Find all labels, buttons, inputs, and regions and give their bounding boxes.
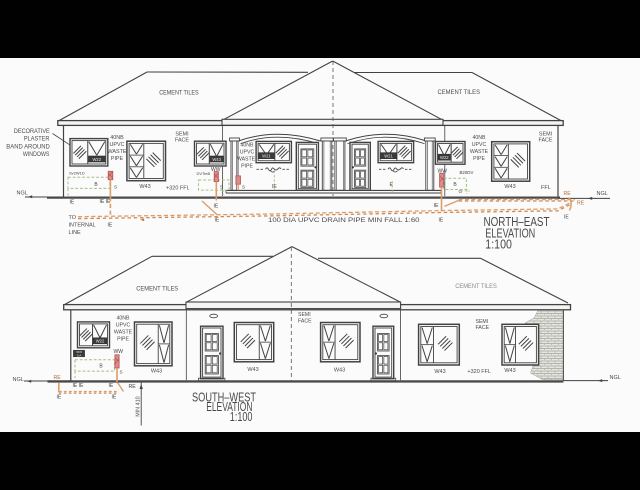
svg-text:UPVC: UPVC: [110, 142, 125, 148]
svg-text:RE: RE: [577, 200, 585, 206]
svg-text:IE: IE: [214, 204, 219, 210]
svg-text:WINDOWS: WINDOWS: [23, 151, 50, 158]
svg-text:WASTE: WASTE: [108, 149, 127, 155]
svg-text:NGL: NGL: [597, 191, 608, 197]
svg-text:IE: IE: [70, 200, 75, 206]
svg-text:1:100: 1:100: [230, 410, 253, 424]
svg-text:CEMENT TILES: CEMENT TILES: [438, 89, 481, 96]
svg-text:PIPE: PIPE: [111, 156, 124, 162]
svg-text:IE: IE: [215, 218, 220, 224]
svg-text:W43: W43: [151, 368, 162, 374]
svg-text:BAND AROUND: BAND AROUND: [6, 143, 50, 150]
svg-text:S: S: [220, 185, 223, 190]
svg-text:RE: RE: [564, 191, 572, 197]
svg-text:CEMENT TILES: CEMENT TILES: [455, 283, 497, 290]
svg-text:FACE: FACE: [298, 318, 312, 324]
svg-text:1:100: 1:100: [485, 237, 512, 251]
svg-text:NGL: NGL: [17, 191, 28, 197]
svg-text:IE: IE: [439, 217, 444, 223]
svg-text:+320 FFL: +320 FFL: [166, 185, 190, 191]
svg-text:W43: W43: [504, 184, 515, 190]
svg-text:FACE: FACE: [538, 138, 552, 144]
svg-text:Sv2W1D: Sv2W1D: [69, 171, 85, 176]
svg-text:WhB: WhB: [76, 350, 82, 354]
svg-text:MIN 410: MIN 410: [135, 396, 141, 416]
svg-text:W43: W43: [212, 157, 221, 162]
svg-text:G: G: [459, 189, 463, 194]
svg-text:IE: IE: [108, 222, 113, 228]
svg-text:40NB: 40NB: [110, 135, 124, 141]
svg-text:FACE: FACE: [175, 137, 189, 143]
svg-text:CEMENT TILES: CEMENT TILES: [159, 90, 199, 97]
svg-text:PIPE: PIPE: [473, 156, 485, 162]
svg-text:W43: W43: [504, 368, 515, 374]
svg-text:IE: IE: [112, 394, 117, 400]
svg-text:W22: W22: [440, 155, 449, 160]
svg-text:UPVC: UPVC: [116, 323, 131, 329]
svg-text:PLASTER: PLASTER: [24, 136, 50, 143]
svg-text:W43: W43: [334, 368, 345, 374]
svg-text:W22: W22: [96, 339, 105, 344]
svg-text:FACE: FACE: [476, 325, 490, 331]
svg-text:WASTE: WASTE: [470, 149, 489, 155]
svg-text:B20DV: B20DV: [460, 170, 474, 175]
svg-text:100 DIA UPVC DRAIN PIPE M: 100 DIA UPVC DRAIN PIPE MIN FALL 1:60: [268, 217, 420, 224]
svg-text:S: S: [120, 370, 123, 375]
svg-text:TO: TO: [69, 215, 77, 221]
svg-text:WW: WW: [114, 349, 124, 355]
svg-text:W21: W21: [262, 154, 271, 159]
svg-text:RE: RE: [54, 375, 62, 381]
svg-text:UPVC: UPVC: [472, 142, 487, 148]
svg-text:DVTieB: DVTieB: [197, 171, 211, 176]
svg-text:WASTE: WASTE: [237, 157, 256, 163]
svg-text:IE: IE: [434, 203, 439, 209]
svg-text:IE: IE: [57, 394, 62, 400]
svg-text:SEMI: SEMI: [298, 312, 311, 318]
svg-text:S: S: [114, 185, 117, 190]
svg-text:40NB: 40NB: [117, 316, 131, 322]
svg-text:W43: W43: [139, 184, 150, 190]
svg-text:SvA: SvA: [77, 353, 82, 357]
svg-text:+320 FFL: +320 FFL: [467, 369, 491, 375]
svg-text:W21: W21: [384, 154, 393, 159]
svg-text:PIPE: PIPE: [241, 164, 253, 170]
svg-text:W43: W43: [247, 367, 258, 373]
svg-text:LINE: LINE: [69, 230, 82, 236]
svg-text:40NB: 40NB: [473, 135, 487, 141]
svg-text:WASTE: WASTE: [114, 330, 133, 336]
svg-text:40NB: 40NB: [241, 143, 255, 149]
svg-text:IE IE: IE IE: [100, 199, 112, 205]
svg-text:W22: W22: [92, 157, 101, 162]
svg-text:IE: IE: [109, 383, 114, 389]
svg-text:NGL: NGL: [13, 377, 24, 383]
svg-text:S: S: [242, 184, 245, 189]
svg-text:W43: W43: [434, 369, 445, 375]
svg-text:FFL: FFL: [541, 185, 551, 191]
svg-text:IE IE: IE IE: [73, 383, 85, 389]
svg-text:IE: IE: [564, 214, 569, 220]
svg-text:INTERNAL: INTERNAL: [69, 222, 96, 228]
svg-text:CEMENT TILES: CEMENT TILES: [136, 286, 178, 293]
svg-text:NGL: NGL: [610, 375, 621, 381]
svg-text:RE: RE: [129, 384, 137, 390]
svg-text:UPVC: UPVC: [240, 150, 255, 156]
svg-text:DECORATIVE: DECORATIVE: [14, 128, 50, 135]
svg-text:IE: IE: [272, 184, 277, 190]
svg-text:PIPE: PIPE: [117, 337, 129, 343]
